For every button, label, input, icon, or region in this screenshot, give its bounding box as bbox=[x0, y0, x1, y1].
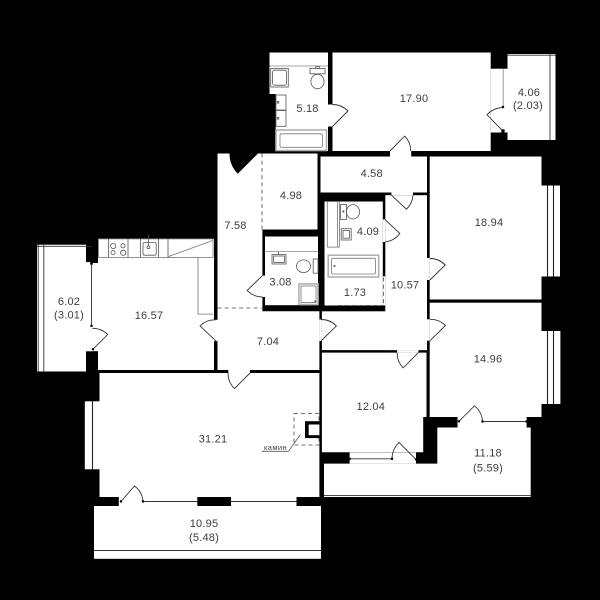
svg-text:31.21: 31.21 bbox=[199, 434, 228, 446]
svg-text:(2.03): (2.03) bbox=[513, 100, 543, 112]
svg-text:(5.59): (5.59) bbox=[473, 463, 503, 475]
svg-text:(3.01): (3.01) bbox=[54, 310, 84, 322]
svg-text:14.96: 14.96 bbox=[474, 354, 503, 366]
svg-text:10.95: 10.95 bbox=[190, 518, 219, 530]
svg-text:11.18: 11.18 bbox=[474, 448, 502, 460]
svg-text:(5.48): (5.48) bbox=[189, 532, 219, 544]
svg-text:17.90: 17.90 bbox=[400, 93, 429, 105]
svg-text:4.06: 4.06 bbox=[518, 87, 540, 99]
svg-text:7.58: 7.58 bbox=[224, 220, 246, 232]
svg-text:7.04: 7.04 bbox=[257, 336, 279, 348]
svg-text:5.18: 5.18 bbox=[296, 103, 318, 115]
svg-text:4.98: 4.98 bbox=[280, 190, 302, 202]
svg-text:10.57: 10.57 bbox=[391, 280, 420, 292]
svg-text:18.94: 18.94 bbox=[475, 217, 504, 229]
svg-text:3.08: 3.08 bbox=[269, 277, 291, 289]
svg-text:4.09: 4.09 bbox=[357, 226, 379, 238]
svg-text:6.02: 6.02 bbox=[58, 296, 80, 308]
svg-text:12.04: 12.04 bbox=[357, 401, 386, 413]
svg-text:4.58: 4.58 bbox=[361, 168, 383, 180]
svg-text:1.73: 1.73 bbox=[344, 287, 366, 299]
svg-text:16.57: 16.57 bbox=[135, 310, 164, 322]
svg-text:камин: камин bbox=[264, 443, 287, 452]
